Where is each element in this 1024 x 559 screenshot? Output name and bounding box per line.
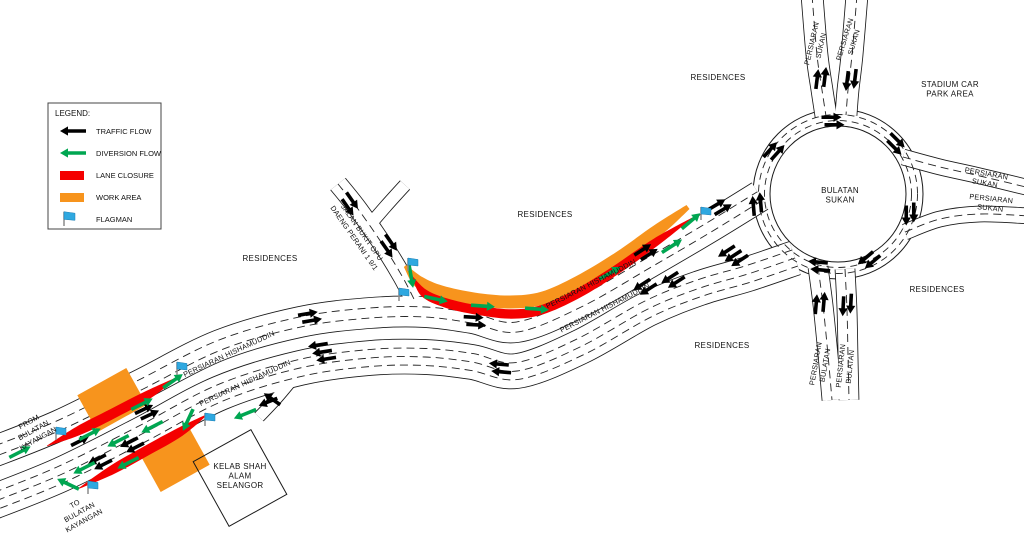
flagman-icon [399, 288, 409, 296]
residences-label: RESIDENCES [690, 73, 745, 82]
flagman-icon [408, 258, 418, 266]
residences-label: RESIDENCES [242, 254, 297, 263]
road-jalan-bukit-opu [338, 184, 414, 299]
to-bulatan-kayangan-label: TOBULATANKAYANGAN [55, 490, 105, 534]
legend-item-flagman: FLAGMAN [96, 215, 132, 224]
road-jalan-bukit-opu-branch [367, 185, 405, 228]
flagman-icon [701, 207, 711, 215]
lane-closure-legend-swatch [60, 171, 84, 180]
legend-title: LEGEND: [55, 109, 90, 118]
work-area-legend-swatch [60, 193, 84, 202]
legend-item-work-area: WORK AREA [96, 193, 141, 202]
residences-label: RESIDENCES [517, 210, 572, 219]
diversion-flow-arrow [232, 405, 258, 423]
traffic-flow-arrow [716, 242, 738, 261]
kelab-label: KELAB SHAHALAMSELANGOR [213, 462, 266, 490]
legend-box [48, 103, 161, 229]
traffic-management-plan-diagram: RESIDENCES RESIDENCES RESIDENCES RESIDEN… [0, 0, 1024, 559]
flagman-icon [205, 413, 215, 421]
residences-label: RESIDENCES [909, 285, 964, 294]
legend-item-lane-closure: LANE CLOSURE [96, 171, 154, 180]
stadium-car-park-label: STADIUM CARPARK AREA [921, 80, 979, 99]
legend-item-traffic-flow: TRAFFIC FLOW [96, 127, 152, 136]
legend-item-diversion-flow: DIVERSION FLOW [96, 149, 162, 158]
legend: LEGEND: TRAFFIC FLOW DIVERSION FLOW LANE… [48, 103, 162, 229]
bulatan-sukan-label: BULATANSUKAN [821, 186, 859, 205]
flagman-icon [56, 427, 66, 435]
residences-label: RESIDENCES [694, 341, 749, 350]
flagman-icon [64, 212, 75, 221]
flagman-icon [88, 481, 98, 489]
